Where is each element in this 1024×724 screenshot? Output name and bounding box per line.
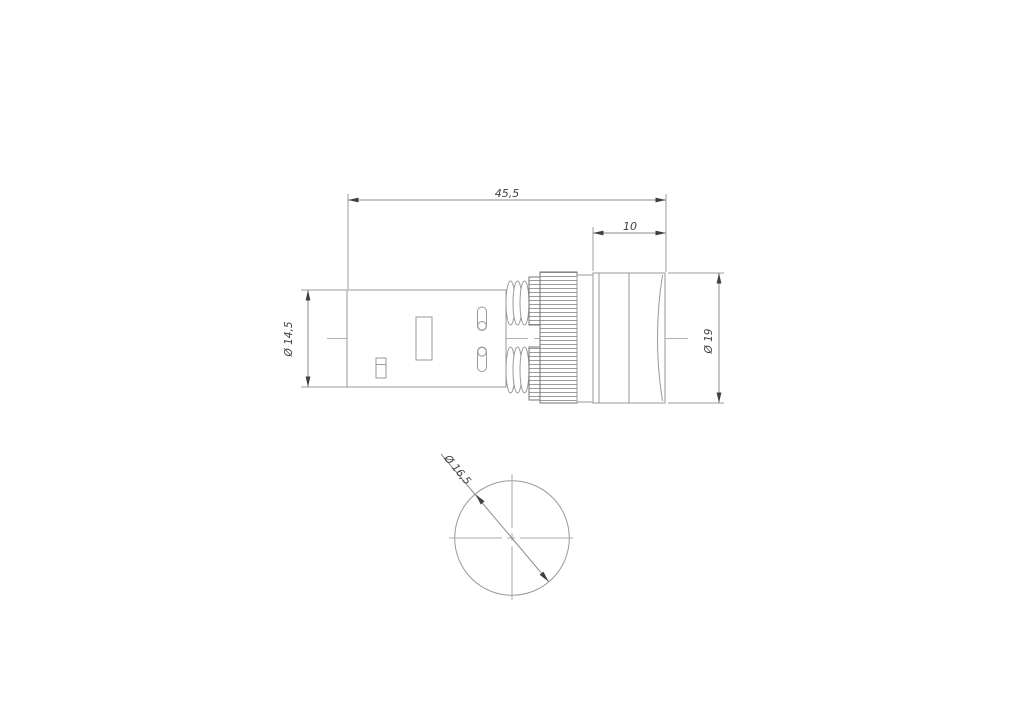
body-diameter-label: Ø 14,5 (283, 321, 295, 357)
bezel-knurl-ring (540, 272, 577, 403)
arrow-upleft-icon (476, 495, 485, 505)
arrow-left-icon (593, 231, 604, 236)
dim-lens-diameter: Ø 16,5 (441, 452, 549, 582)
rear-housing-outline (347, 290, 506, 387)
mounting-nut-knurl-upper (529, 277, 540, 325)
dim-front-length: 10 (593, 220, 666, 271)
arrow-up-icon (306, 290, 311, 301)
lens-diameter-label: Ø 16,5 (441, 452, 474, 488)
total-length-label: 45,5 (495, 187, 520, 200)
thread-coils-lower (506, 347, 529, 393)
bezel-neck (577, 275, 593, 402)
arrow-down-icon (306, 377, 311, 388)
arrow-down-icon (717, 393, 722, 404)
indicator-lamp-drawing: 45,5 10 Ø 14,5 Ø 19 (0, 0, 1024, 724)
front-diameter-label: Ø 19 (703, 328, 715, 354)
front-view: Ø 16,5 (441, 452, 575, 603)
front-length-label: 10 (623, 220, 637, 233)
mounting-nut-knurl-lower (529, 347, 540, 400)
side-view: 45,5 10 Ø 14,5 Ø 19 (283, 187, 724, 403)
arrow-right-icon (656, 198, 667, 203)
thread-coils-upper (506, 281, 529, 325)
arrow-left-icon (348, 198, 359, 203)
front-housing (593, 273, 665, 403)
arrow-right-icon (656, 231, 667, 236)
arrow-up-icon (717, 273, 722, 284)
technical-drawing-canvas: 45,5 10 Ø 14,5 Ø 19 (0, 0, 1024, 724)
